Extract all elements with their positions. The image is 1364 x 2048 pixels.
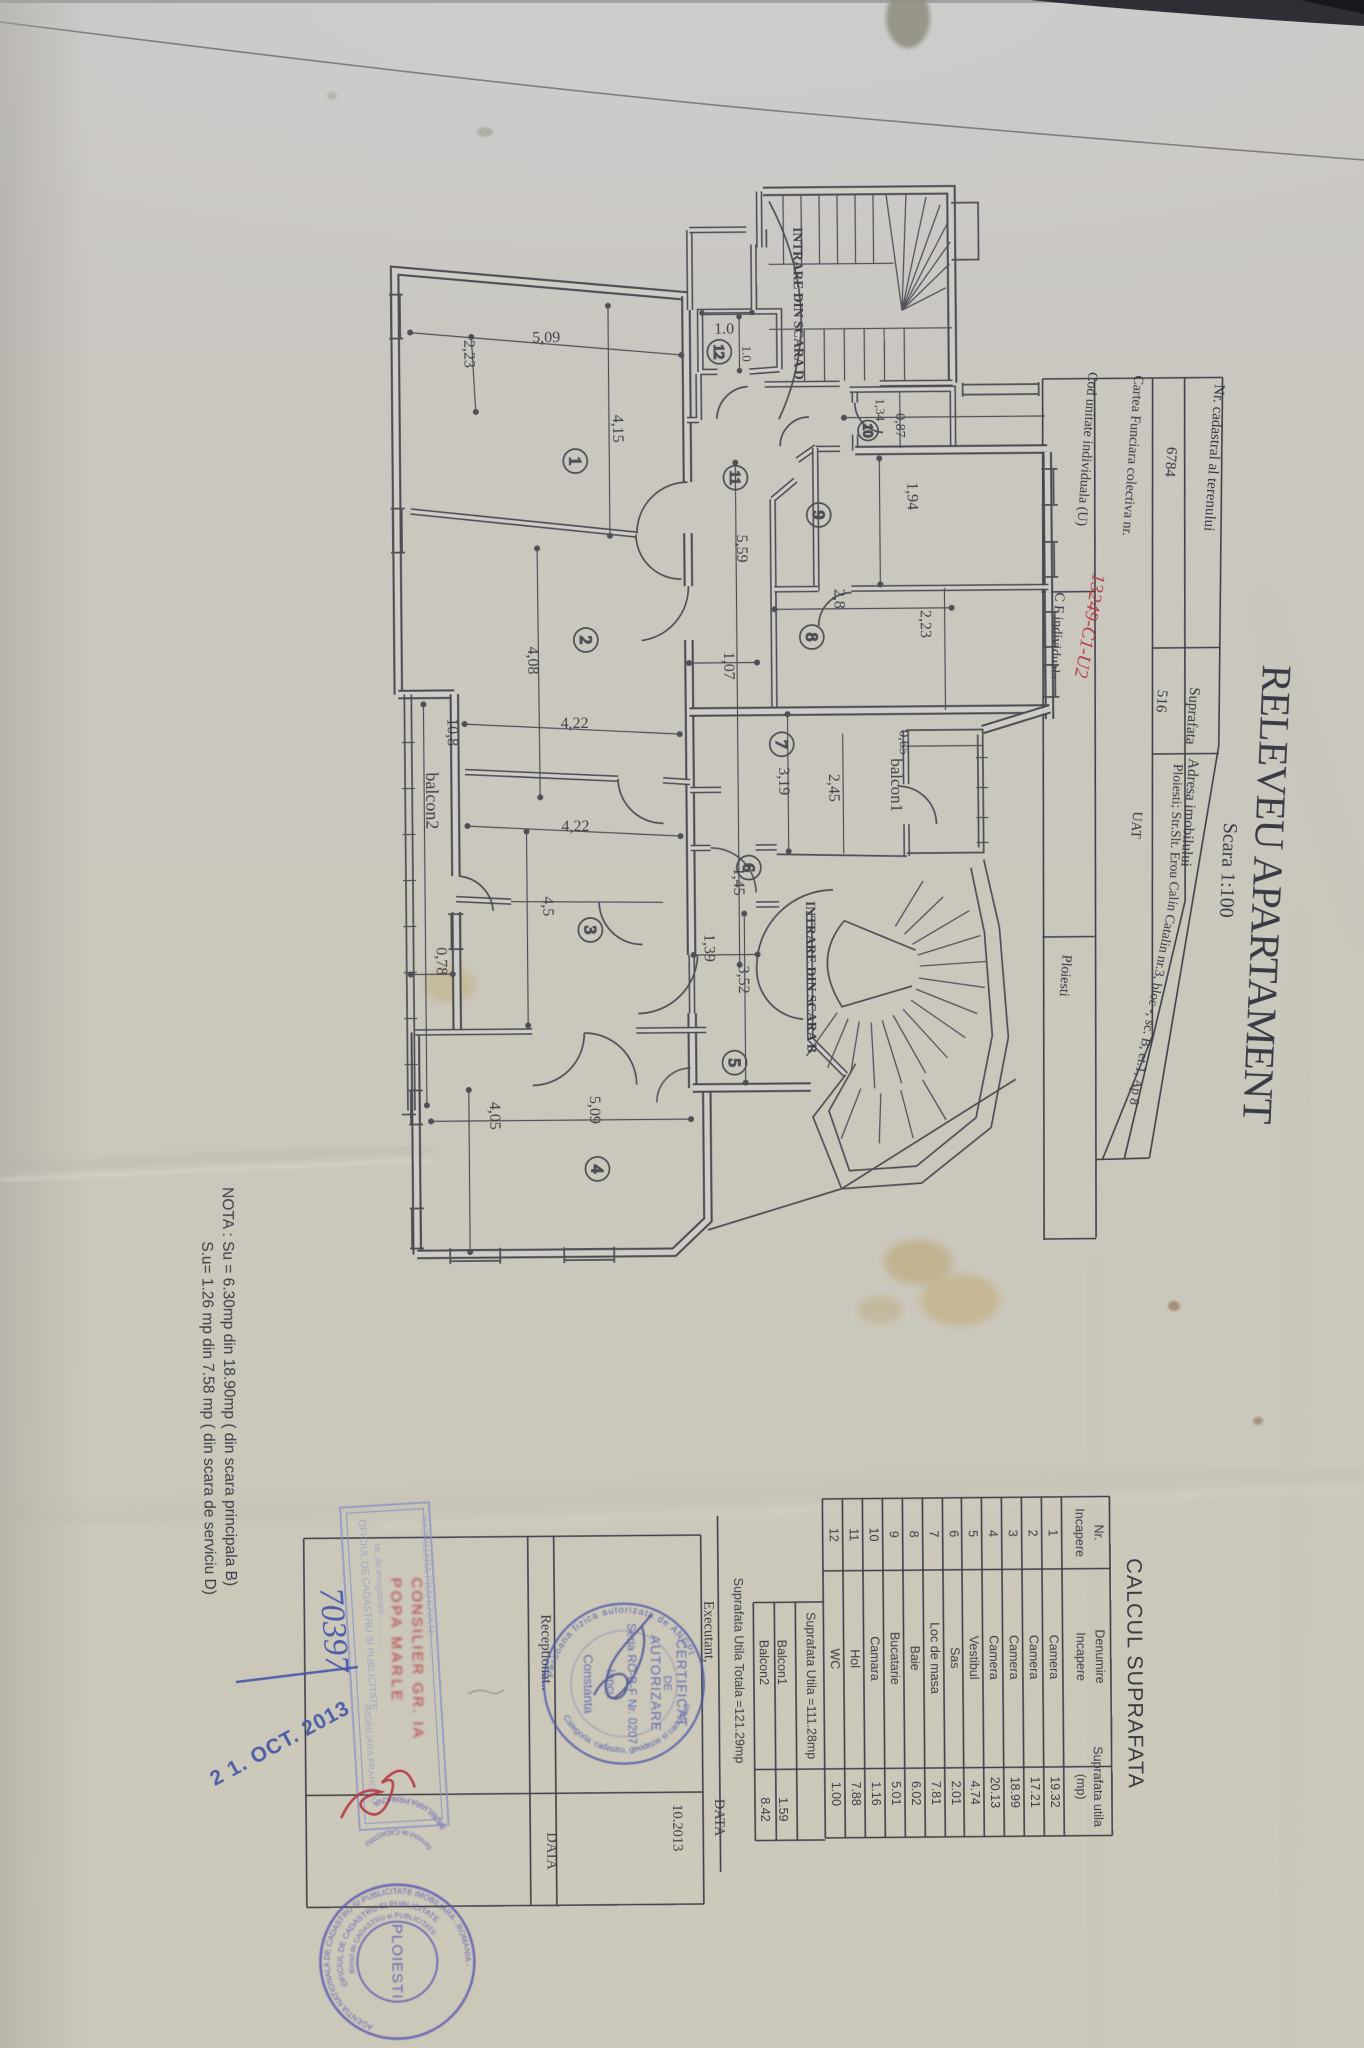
svg-text:11: 11 <box>847 1528 861 1541</box>
svg-text:1: 1 <box>1046 1529 1060 1536</box>
svg-text:1.0: 1.0 <box>739 346 754 362</box>
svg-text:Incapere: Incapere <box>1072 1508 1086 1557</box>
svg-text:7.81: 7.81 <box>929 1781 943 1805</box>
svg-text:4,05: 4,05 <box>486 1102 503 1130</box>
svg-text:4.74: 4.74 <box>968 1780 982 1804</box>
svg-text:2,23: 2,23 <box>917 610 934 638</box>
svg-text:4: 4 <box>588 1165 607 1174</box>
svg-text:10: 10 <box>859 423 874 437</box>
svg-text:2: 2 <box>1026 1530 1040 1537</box>
svg-text:6: 6 <box>947 1530 961 1537</box>
svg-text:WC: WC <box>828 1648 842 1669</box>
svg-text:4,22: 4,22 <box>561 818 589 835</box>
svg-text:5: 5 <box>966 1530 980 1537</box>
svg-text:5,09: 5,09 <box>586 1096 603 1124</box>
svg-text:10: 10 <box>867 1527 881 1541</box>
svg-text:Denumire: Denumire <box>1093 1629 1107 1683</box>
svg-text:DATA: DATA <box>543 1832 559 1870</box>
svg-text:INTRARE DIN SCARA D: INTRARE DIN SCARA D <box>790 227 806 380</box>
svg-text:INTRARE DIN SCARA B: INTRARE DIN SCARA B <box>803 901 819 1053</box>
svg-text:1.0: 1.0 <box>714 321 734 338</box>
svg-text:(mp): (mp) <box>1074 1774 1088 1800</box>
svg-text:516: 516 <box>1152 689 1170 713</box>
svg-text:1.00: 1.00 <box>829 1782 843 1806</box>
svg-text:5.01: 5.01 <box>889 1781 903 1805</box>
svg-text:19.32: 19.32 <box>1048 1776 1062 1807</box>
svg-text:0,78: 0,78 <box>433 947 450 975</box>
svg-text:CONSILIER GR. IA: CONSILIER GR. IA <box>408 1577 426 1739</box>
svg-text:2.01: 2.01 <box>949 1781 963 1805</box>
svg-text:11: 11 <box>726 470 742 485</box>
svg-text:Camera: Camera <box>1047 1635 1061 1680</box>
svg-text:Balcon1: Balcon1 <box>775 1640 789 1685</box>
svg-text:3: 3 <box>1006 1530 1020 1537</box>
svg-text:10.2013: 10.2013 <box>669 1804 685 1851</box>
svg-text:12: 12 <box>710 344 726 359</box>
svg-text:2: 2 <box>576 636 595 645</box>
svg-text:Hol: Hol <box>848 1649 862 1668</box>
svg-text:1.59: 1.59 <box>776 1797 790 1821</box>
svg-text:6.02: 6.02 <box>909 1781 923 1805</box>
svg-text:1,07: 1,07 <box>720 652 737 680</box>
svg-text:Suprafata Utila Totala =121.29: Suprafata Utila Totala =121.29mp <box>731 1578 747 1764</box>
svg-text:Loc de masa: Loc de masa <box>927 1622 942 1694</box>
svg-text:5,09: 5,09 <box>532 329 560 346</box>
svg-text:POPA MARLE: POPA MARLE <box>387 1578 405 1704</box>
svg-text:7.88: 7.88 <box>849 1781 863 1805</box>
svg-text:8: 8 <box>802 633 821 642</box>
svg-text:PLOIESTI: PLOIESTI <box>388 1924 406 2000</box>
svg-text:Executant,: Executant, <box>700 1601 717 1663</box>
svg-text:Scara 1:100: Scara 1:100 <box>1215 822 1241 918</box>
svg-text:Suprafata Utila =111.28mp: Suprafata Utila =111.28mp <box>803 1612 818 1759</box>
svg-text:1: 1 <box>566 457 585 466</box>
svg-text:7: 7 <box>927 1530 941 1537</box>
svg-text:Balcon2: Balcon2 <box>757 1640 771 1685</box>
svg-text:1,34: 1,34 <box>873 398 888 421</box>
svg-text:Vestibul: Vestibul <box>967 1636 981 1680</box>
svg-text:UAT: UAT <box>1127 811 1144 840</box>
svg-text:1,94: 1,94 <box>903 482 920 510</box>
svg-text:2,8: 2,8 <box>830 589 847 609</box>
svg-text:DATA: DATA <box>711 1799 727 1837</box>
svg-text:Suprafata utila: Suprafata utila <box>1091 1746 1106 1827</box>
svg-text:4,08: 4,08 <box>524 646 541 674</box>
svg-text:AUTORIZARE: AUTORIZARE <box>648 1635 664 1732</box>
svg-text:Nr.: Nr. <box>1092 1524 1106 1540</box>
svg-text:18.99: 18.99 <box>1008 1777 1022 1808</box>
svg-text:6784: 6784 <box>1161 446 1179 478</box>
svg-text:2,23: 2,23 <box>460 340 477 368</box>
svg-text:4,22: 4,22 <box>561 715 589 732</box>
svg-text:20.13: 20.13 <box>988 1777 1002 1808</box>
svg-text:8: 8 <box>907 1531 921 1538</box>
svg-text:Incapere: Incapere <box>1074 1632 1088 1681</box>
svg-text:balcon2: balcon2 <box>422 772 442 829</box>
svg-text:Sas: Sas <box>948 1647 962 1669</box>
svg-text:CALCUL SUPRAFATA: CALCUL SUPRAFATA <box>1122 1558 1148 1789</box>
svg-text:3,52: 3,52 <box>735 966 752 994</box>
svg-text:8.42: 8.42 <box>758 1797 772 1821</box>
svg-text:Baie: Baie <box>908 1646 922 1671</box>
svg-text:Camera: Camera <box>987 1635 1001 1680</box>
svg-text:Camera: Camera <box>1027 1635 1041 1680</box>
svg-text:4: 4 <box>986 1530 1000 1537</box>
svg-text:Constanta: Constanta <box>581 1654 597 1714</box>
svg-text:Camara: Camara <box>868 1636 882 1681</box>
svg-text:5,59: 5,59 <box>733 535 750 563</box>
svg-text:NOTA : Su = 6.30mp din 18.90: NOTA : Su = 6.30mp din 18.90mp ( din sca… <box>219 1187 239 1586</box>
svg-text:4,15: 4,15 <box>609 415 626 443</box>
svg-text:9: 9 <box>887 1531 901 1538</box>
svg-text:2,45: 2,45 <box>825 774 842 802</box>
svg-text:17.21: 17.21 <box>1028 1776 1042 1807</box>
svg-text:4,5: 4,5 <box>539 896 556 916</box>
svg-text:1.16: 1.16 <box>869 1781 883 1805</box>
svg-text:10,8: 10,8 <box>444 718 461 746</box>
svg-text:0,87: 0,87 <box>892 413 907 438</box>
svg-text:1,45: 1,45 <box>730 868 747 896</box>
svg-text:3: 3 <box>581 926 600 935</box>
svg-text:Ploiesti: Ploiesti <box>1056 954 1074 997</box>
svg-text:1,39: 1,39 <box>700 934 717 962</box>
svg-text:0,65: 0,65 <box>896 730 911 755</box>
svg-text:3,19: 3,19 <box>775 767 792 795</box>
svg-text:Bucatarie: Bucatarie <box>888 1632 902 1685</box>
svg-text:7: 7 <box>772 740 791 749</box>
svg-text:balcon1: balcon1 <box>887 758 906 812</box>
svg-text:5: 5 <box>725 1058 744 1067</box>
svg-text:9: 9 <box>809 511 828 520</box>
svg-text:S.u= 1.26 mp din 7.58 mp ( din: S.u= 1.26 mp din 7.58 mp ( din scara de … <box>198 1241 218 1595</box>
svg-text:Camera: Camera <box>1007 1635 1021 1680</box>
svg-text:70397: 70397 <box>312 1586 356 1676</box>
svg-text:12: 12 <box>827 1528 841 1542</box>
